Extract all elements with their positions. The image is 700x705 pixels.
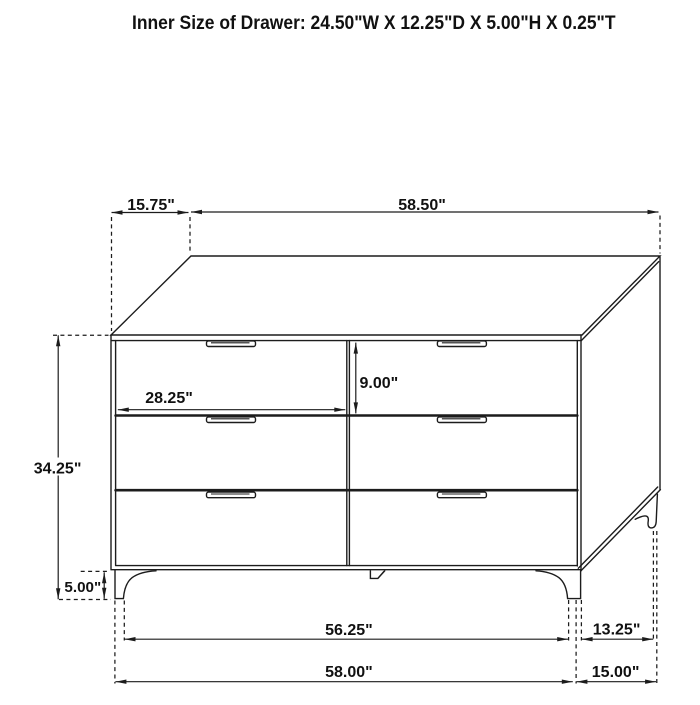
svg-text:34.25": 34.25" <box>34 460 82 477</box>
svg-text:56.25": 56.25" <box>325 622 373 639</box>
svg-text:13.25": 13.25" <box>593 622 641 639</box>
svg-text:15.00": 15.00" <box>592 664 640 681</box>
svg-text:Inner Size of Drawer: 24.50"W: Inner Size of Drawer: 24.50"W X 12.25"D … <box>132 12 616 34</box>
svg-text:58.00": 58.00" <box>325 664 373 681</box>
svg-text:28.25": 28.25" <box>145 390 193 407</box>
svg-text:9.00": 9.00" <box>360 375 399 392</box>
svg-text:58.50": 58.50" <box>398 197 446 214</box>
svg-text:15.75": 15.75" <box>127 197 175 214</box>
svg-text:5.00": 5.00" <box>64 579 101 596</box>
